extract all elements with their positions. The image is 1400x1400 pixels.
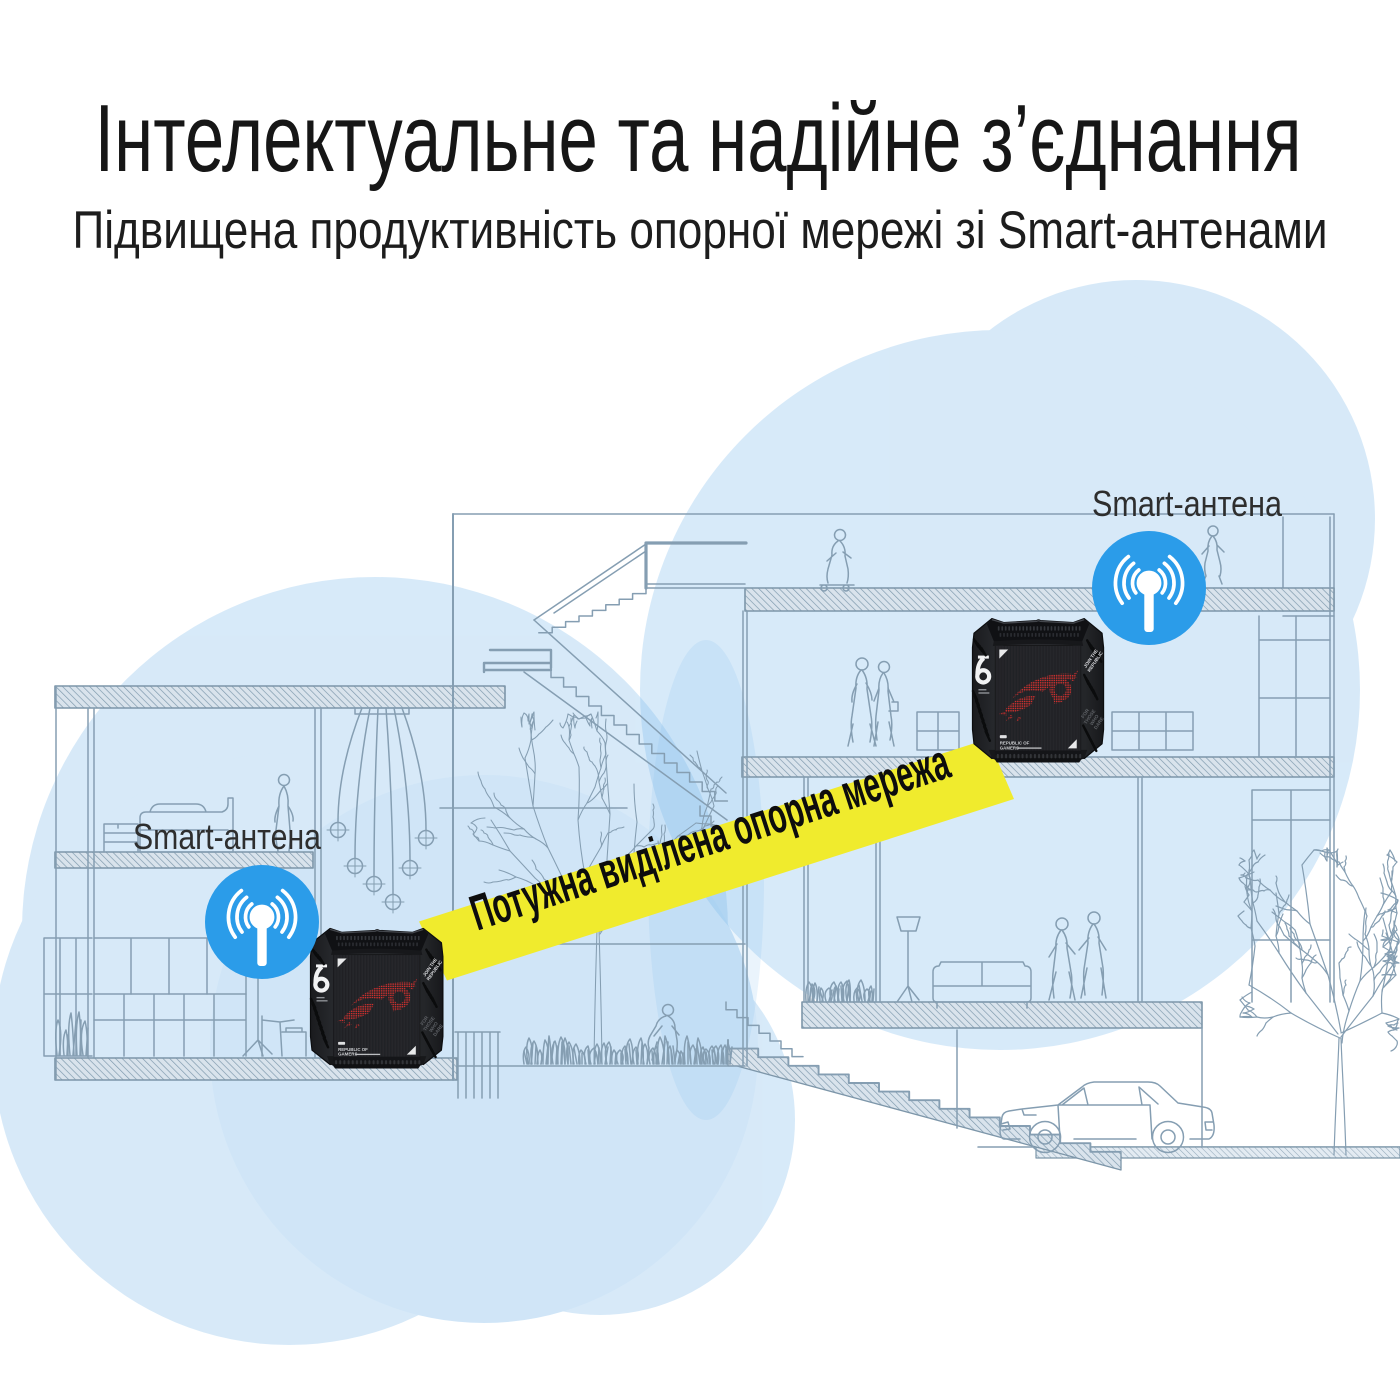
svg-text:Підвищена продуктивність опорн: Підвищена продуктивність опорної мережі … [73,201,1328,260]
svg-text:Інтелектуальне та надійне з’єд: Інтелектуальне та надійне з’єднання [95,85,1302,192]
svg-text:Smart-антена: Smart-антена [133,816,322,857]
svg-text:Smart-антена: Smart-антена [1092,483,1283,524]
